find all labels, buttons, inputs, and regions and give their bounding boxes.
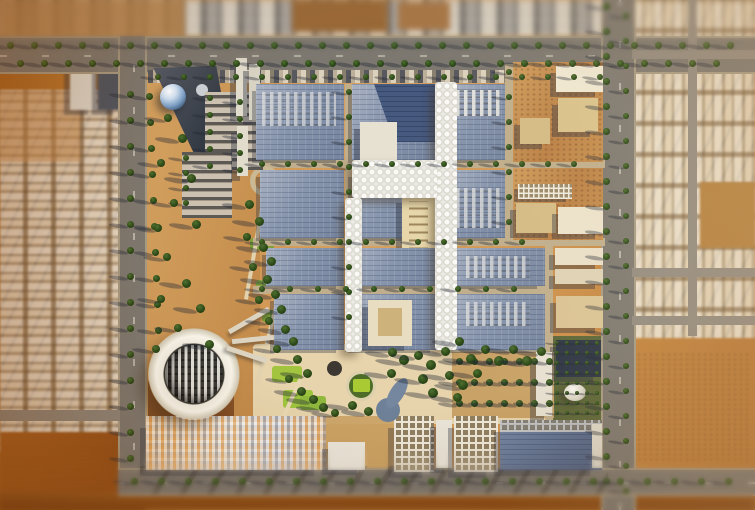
tree bbox=[233, 74, 239, 80]
tree bbox=[623, 413, 629, 419]
tree bbox=[623, 288, 629, 294]
tree bbox=[455, 337, 464, 346]
tree bbox=[347, 478, 354, 485]
tree bbox=[266, 478, 273, 485]
tree bbox=[287, 286, 293, 292]
tree bbox=[343, 286, 349, 292]
tree bbox=[346, 139, 352, 145]
tree bbox=[153, 275, 160, 282]
tree bbox=[467, 74, 473, 80]
tree bbox=[493, 161, 499, 167]
tree bbox=[467, 161, 473, 167]
tree bbox=[337, 74, 343, 80]
tree bbox=[131, 478, 138, 485]
tree bbox=[545, 74, 551, 80]
canopy-west bbox=[345, 198, 362, 352]
tree bbox=[595, 341, 599, 345]
tree bbox=[170, 199, 178, 207]
tree bbox=[346, 89, 352, 95]
tree bbox=[603, 353, 610, 360]
tree bbox=[259, 74, 265, 80]
neighborhood-road-west bbox=[0, 410, 120, 421]
tree bbox=[285, 239, 291, 245]
tree bbox=[371, 286, 377, 292]
block-c1-roof-units bbox=[456, 90, 500, 116]
construction-slab-2 bbox=[558, 207, 603, 234]
block-a1-roof-units bbox=[262, 92, 336, 126]
tree bbox=[506, 194, 512, 200]
tree bbox=[311, 239, 317, 245]
tree bbox=[623, 488, 629, 494]
tree bbox=[506, 119, 512, 125]
tree bbox=[428, 478, 435, 485]
tree bbox=[571, 74, 577, 80]
dome-sphere bbox=[160, 84, 186, 110]
tree bbox=[493, 239, 499, 245]
tree bbox=[623, 88, 629, 94]
tree bbox=[441, 239, 447, 245]
tree bbox=[623, 163, 629, 169]
tree bbox=[387, 369, 396, 378]
tree bbox=[519, 74, 525, 80]
tree bbox=[595, 361, 599, 365]
tree bbox=[157, 159, 165, 167]
tree bbox=[603, 278, 610, 285]
tree bbox=[183, 155, 189, 161]
tree bbox=[623, 13, 629, 19]
top-dirt-field bbox=[292, 0, 388, 32]
tree bbox=[441, 74, 447, 80]
tree bbox=[212, 478, 219, 485]
tree bbox=[183, 185, 189, 191]
tree bbox=[415, 239, 421, 245]
tree bbox=[603, 403, 610, 410]
tree bbox=[178, 134, 187, 143]
tree bbox=[273, 345, 281, 353]
tree bbox=[671, 478, 678, 485]
tree bbox=[163, 253, 171, 261]
tree bbox=[426, 360, 436, 370]
tree bbox=[293, 478, 300, 485]
tree bbox=[237, 116, 243, 122]
tree bbox=[320, 478, 327, 485]
tree bbox=[399, 286, 405, 292]
tree bbox=[303, 369, 312, 378]
tree bbox=[207, 74, 213, 80]
tree bbox=[182, 279, 191, 288]
tree bbox=[595, 391, 599, 395]
tree bbox=[467, 239, 473, 245]
tree bbox=[603, 78, 610, 85]
tree bbox=[603, 253, 610, 260]
tree bbox=[537, 347, 546, 356]
tree bbox=[311, 161, 317, 167]
courtyard-building-b1 bbox=[360, 122, 397, 160]
tree bbox=[603, 203, 610, 210]
tree bbox=[623, 63, 629, 69]
south-slab bbox=[436, 420, 452, 468]
tree bbox=[149, 171, 156, 178]
tree bbox=[311, 74, 317, 80]
tree bbox=[623, 213, 629, 219]
tree bbox=[603, 378, 610, 385]
tree bbox=[309, 395, 318, 404]
tree bbox=[363, 239, 369, 245]
tree bbox=[455, 286, 461, 292]
amphitheater bbox=[327, 361, 342, 376]
tree bbox=[603, 178, 610, 185]
tree bbox=[623, 38, 629, 44]
tree bbox=[346, 214, 352, 220]
tree bbox=[603, 153, 610, 160]
tree bbox=[483, 286, 489, 292]
tree bbox=[623, 113, 629, 119]
tree bbox=[285, 74, 291, 80]
south-lattice-1 bbox=[394, 416, 434, 472]
tree bbox=[519, 239, 525, 245]
tree bbox=[698, 478, 705, 485]
tree bbox=[127, 299, 134, 306]
tree bbox=[623, 263, 629, 269]
block-a2 bbox=[260, 170, 344, 238]
tree bbox=[255, 296, 263, 304]
tree bbox=[506, 69, 512, 75]
tree bbox=[152, 345, 160, 353]
tree bbox=[174, 324, 182, 332]
tree bbox=[506, 169, 512, 175]
tree bbox=[603, 3, 610, 10]
tree bbox=[127, 429, 134, 436]
construction-lattice-slab bbox=[518, 184, 572, 199]
market-hall-slab bbox=[328, 442, 365, 470]
tree bbox=[237, 133, 243, 139]
tree bbox=[441, 347, 450, 356]
tree bbox=[571, 161, 577, 167]
tree bbox=[346, 189, 352, 195]
tree bbox=[127, 455, 134, 462]
tree bbox=[127, 247, 134, 254]
tree bbox=[192, 220, 201, 229]
tree bbox=[473, 369, 482, 378]
tree bbox=[519, 161, 525, 167]
block-c3-roof-units bbox=[466, 256, 530, 278]
ladder-building bbox=[402, 196, 436, 254]
tree bbox=[263, 275, 272, 284]
tree bbox=[285, 375, 293, 383]
tree bbox=[207, 129, 213, 135]
tree bbox=[389, 239, 395, 245]
tree bbox=[617, 478, 624, 485]
construction-tan-1 bbox=[558, 98, 598, 132]
construction-tan-2 bbox=[516, 203, 556, 233]
tree bbox=[623, 388, 629, 394]
tree bbox=[267, 257, 276, 266]
tree bbox=[207, 95, 213, 101]
tree bbox=[297, 387, 306, 396]
tree bbox=[183, 200, 189, 206]
street-v2 bbox=[505, 64, 513, 242]
tree bbox=[623, 463, 629, 469]
tree bbox=[363, 161, 369, 167]
tree bbox=[595, 371, 599, 375]
tree bbox=[595, 411, 599, 415]
tree bbox=[127, 377, 134, 384]
tree bbox=[164, 114, 172, 122]
tree bbox=[363, 74, 369, 80]
tree bbox=[455, 478, 462, 485]
tree bbox=[259, 243, 268, 252]
construction-tan-1b bbox=[520, 118, 550, 144]
tree bbox=[259, 286, 265, 292]
tree bbox=[154, 224, 162, 232]
tree bbox=[623, 338, 629, 344]
tree bbox=[427, 286, 433, 292]
tree bbox=[545, 161, 551, 167]
tree bbox=[623, 363, 629, 369]
tree bbox=[415, 161, 421, 167]
tree bbox=[207, 146, 213, 152]
block-b3 bbox=[352, 248, 438, 286]
tree bbox=[374, 478, 381, 485]
tree bbox=[315, 286, 321, 292]
tree bbox=[259, 161, 265, 167]
tree bbox=[348, 401, 357, 410]
tree bbox=[603, 228, 610, 235]
tree bbox=[603, 303, 610, 310]
courtyard-building-b4-inner bbox=[378, 308, 402, 336]
tree bbox=[185, 478, 192, 485]
tree bbox=[644, 478, 651, 485]
canopy-spine bbox=[435, 82, 457, 350]
tree bbox=[511, 286, 517, 292]
tree bbox=[249, 263, 257, 271]
top-dirt-field-2 bbox=[398, 2, 450, 30]
left-neighborhood-fade bbox=[0, 90, 80, 162]
tree bbox=[152, 249, 159, 256]
tree bbox=[623, 313, 629, 319]
tree bbox=[597, 74, 603, 80]
tree bbox=[337, 239, 343, 245]
tree bbox=[623, 238, 629, 244]
tree bbox=[346, 114, 352, 120]
tree bbox=[237, 150, 243, 156]
tree bbox=[331, 409, 339, 417]
right-dirt-lot bbox=[700, 182, 755, 248]
tree bbox=[458, 380, 468, 390]
slab-nw-1 bbox=[236, 58, 247, 116]
ring-core bbox=[165, 345, 223, 403]
tree bbox=[595, 381, 599, 385]
tree bbox=[157, 295, 165, 303]
tree bbox=[595, 351, 599, 355]
tree bbox=[127, 351, 134, 358]
tree bbox=[563, 478, 570, 485]
tree bbox=[603, 103, 610, 110]
south-lattice-2 bbox=[454, 416, 498, 472]
tree bbox=[727, 42, 734, 49]
tree bbox=[181, 74, 187, 80]
tree bbox=[453, 393, 462, 402]
tree bbox=[389, 74, 395, 80]
tree bbox=[623, 138, 629, 144]
tree bbox=[337, 161, 343, 167]
tree bbox=[237, 167, 243, 173]
tree bbox=[482, 478, 489, 485]
aerial-masterplan-view bbox=[0, 0, 755, 510]
tree bbox=[536, 478, 543, 485]
tree bbox=[713, 60, 720, 67]
tree bbox=[603, 53, 610, 60]
tree bbox=[271, 290, 280, 299]
block-c4-roof-units bbox=[466, 302, 530, 326]
tree bbox=[623, 438, 629, 444]
tree bbox=[293, 355, 302, 364]
tree bbox=[148, 145, 155, 152]
tree bbox=[441, 161, 447, 167]
tree bbox=[207, 112, 213, 118]
tree bbox=[277, 305, 286, 314]
tree bbox=[255, 217, 264, 226]
tree bbox=[239, 478, 246, 485]
parking-lot-west bbox=[182, 152, 232, 218]
bottom-right-desert-texture bbox=[636, 352, 748, 464]
tree bbox=[265, 317, 273, 325]
tree bbox=[127, 273, 134, 280]
tree bbox=[207, 163, 213, 169]
tree bbox=[205, 340, 214, 349]
tree bbox=[509, 478, 516, 485]
tree bbox=[603, 328, 610, 335]
tree bbox=[285, 161, 291, 167]
tree bbox=[281, 325, 290, 334]
tree bbox=[289, 337, 298, 346]
tree bbox=[245, 200, 254, 209]
tree bbox=[127, 403, 134, 410]
slab-e3 bbox=[556, 296, 603, 328]
tree bbox=[364, 407, 373, 416]
tree bbox=[196, 304, 205, 313]
tree bbox=[346, 314, 352, 320]
sports-field bbox=[353, 379, 370, 392]
tree bbox=[506, 144, 512, 150]
tree bbox=[725, 478, 732, 485]
tree bbox=[158, 478, 165, 485]
neighborhood-road-east-v bbox=[688, 0, 697, 336]
tree bbox=[603, 28, 610, 35]
market-hall-checker bbox=[146, 416, 326, 470]
tree bbox=[237, 99, 243, 105]
tree bbox=[595, 401, 599, 405]
tree bbox=[146, 93, 153, 100]
tree bbox=[187, 174, 196, 183]
scene-canvas bbox=[0, 0, 755, 510]
tree bbox=[522, 356, 532, 366]
tree bbox=[590, 478, 597, 485]
tree bbox=[623, 188, 629, 194]
tree bbox=[401, 478, 408, 485]
tree bbox=[389, 161, 395, 167]
tree bbox=[506, 219, 512, 225]
tree bbox=[155, 74, 161, 80]
tree bbox=[127, 325, 134, 332]
tree bbox=[603, 128, 610, 135]
tree bbox=[243, 233, 251, 241]
tree bbox=[506, 94, 512, 100]
tree bbox=[603, 428, 610, 435]
tree bbox=[346, 264, 352, 270]
tree bbox=[603, 453, 610, 460]
west-road bbox=[118, 36, 147, 492]
tree bbox=[415, 74, 421, 80]
